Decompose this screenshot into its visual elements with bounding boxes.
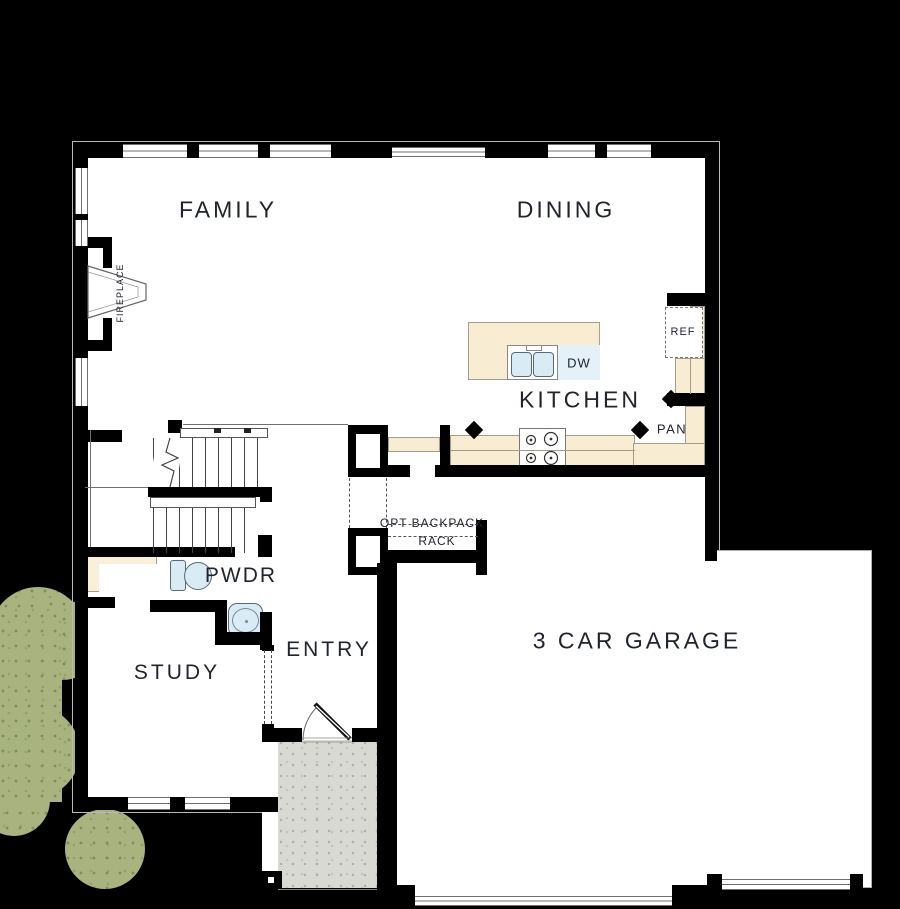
stair-treads-upper <box>153 438 268 487</box>
porch-edge-line <box>278 889 377 890</box>
window <box>128 797 170 810</box>
wall-segment <box>262 797 278 812</box>
window <box>75 168 88 214</box>
counter-edge-line <box>450 450 635 451</box>
annotation-backpack-line2: RACK <box>418 534 455 548</box>
wall-segment <box>75 430 122 442</box>
floor-plan: FAMILY DINING KITCHEN 3 CAR GARAGE STUDY… <box>0 0 900 909</box>
exterior-outline <box>719 141 720 561</box>
wall-segment <box>435 465 707 477</box>
wall-segment <box>150 600 218 612</box>
wall-segment <box>485 144 548 158</box>
pantry-counter-bottom <box>633 443 705 467</box>
fixture-label-dishwasher: DW <box>567 356 591 371</box>
room-label-family: FAMILY <box>179 197 277 224</box>
window <box>270 144 331 158</box>
wall-right-exterior <box>705 144 717 561</box>
stair-landing-wall <box>148 487 268 497</box>
floor-garage-right <box>707 550 872 888</box>
wall-segment <box>170 797 185 810</box>
mudroom-counter <box>388 437 440 452</box>
wall-segment <box>352 728 377 742</box>
range <box>519 428 566 467</box>
fireplace-chase <box>103 318 112 340</box>
stair-railing <box>180 428 268 438</box>
wall-segment <box>385 550 487 563</box>
window <box>607 144 651 158</box>
sink-basin <box>511 352 532 377</box>
room-divider-line <box>183 424 348 425</box>
shrub <box>65 809 145 889</box>
exterior-outline <box>72 141 73 813</box>
wall-segment <box>595 144 607 158</box>
fireplace-chase <box>103 248 112 268</box>
room-label-powder: PWDR <box>205 564 277 588</box>
wall-entry-garage <box>377 563 397 909</box>
room-label-kitchen: KITCHEN <box>519 387 641 414</box>
window <box>75 358 88 406</box>
wall-segment <box>707 874 722 909</box>
study-door-dashed <box>264 650 272 724</box>
floor-entry <box>272 480 392 742</box>
wall-segment <box>258 535 272 557</box>
wall-segment <box>262 728 302 742</box>
annotation-backpack-line1: OPT BACKPACK <box>380 516 484 530</box>
shrub <box>0 612 62 802</box>
wall-segment <box>440 425 450 465</box>
window <box>123 144 187 158</box>
hall-line <box>90 430 91 547</box>
porch-post-center <box>268 877 274 883</box>
window <box>548 144 595 158</box>
window <box>185 797 230 810</box>
window <box>199 144 258 158</box>
powder-sink-drain <box>245 620 248 623</box>
wall-segment <box>387 465 410 477</box>
wall-segment <box>850 874 863 895</box>
wall-segment <box>348 468 388 477</box>
room-label-garage: 3 CAR GARAGE <box>533 628 742 655</box>
porch <box>278 740 377 888</box>
room-label-dining: DINING <box>517 197 616 224</box>
wall-segment <box>667 393 707 406</box>
fireplace-chase <box>85 340 112 351</box>
wall-segment <box>667 293 707 306</box>
stair-railing <box>150 497 256 508</box>
wall-segment <box>75 797 128 810</box>
fixture-label-fireplace: FIREPLACE <box>115 263 125 322</box>
fixture-label-pantry: PAN <box>657 422 687 437</box>
wall-segment <box>260 487 272 502</box>
garage-door-single <box>722 879 850 890</box>
wall-segment <box>187 144 199 158</box>
sink-faucet <box>526 345 542 351</box>
hall-line <box>85 487 148 488</box>
wall-segment <box>331 144 392 158</box>
fireplace-chase <box>85 237 112 248</box>
wall-segment <box>258 144 270 158</box>
fixture-label-fridge: REF <box>671 326 696 338</box>
entry-closet-interior <box>99 564 157 592</box>
exterior-outline <box>72 141 720 142</box>
room-label-study: STUDY <box>134 661 220 685</box>
stair-treads-lower <box>153 508 253 553</box>
room-label-entry: ENTRY <box>286 638 372 662</box>
window <box>75 220 88 246</box>
opening-dashed <box>349 478 350 528</box>
sink-basin <box>533 352 554 377</box>
exterior-outline <box>72 812 276 813</box>
wall-segment <box>377 885 415 909</box>
garage-door-double <box>415 896 672 906</box>
window <box>392 147 485 157</box>
wall-segment <box>85 597 115 608</box>
counter-edge-line <box>690 358 691 394</box>
